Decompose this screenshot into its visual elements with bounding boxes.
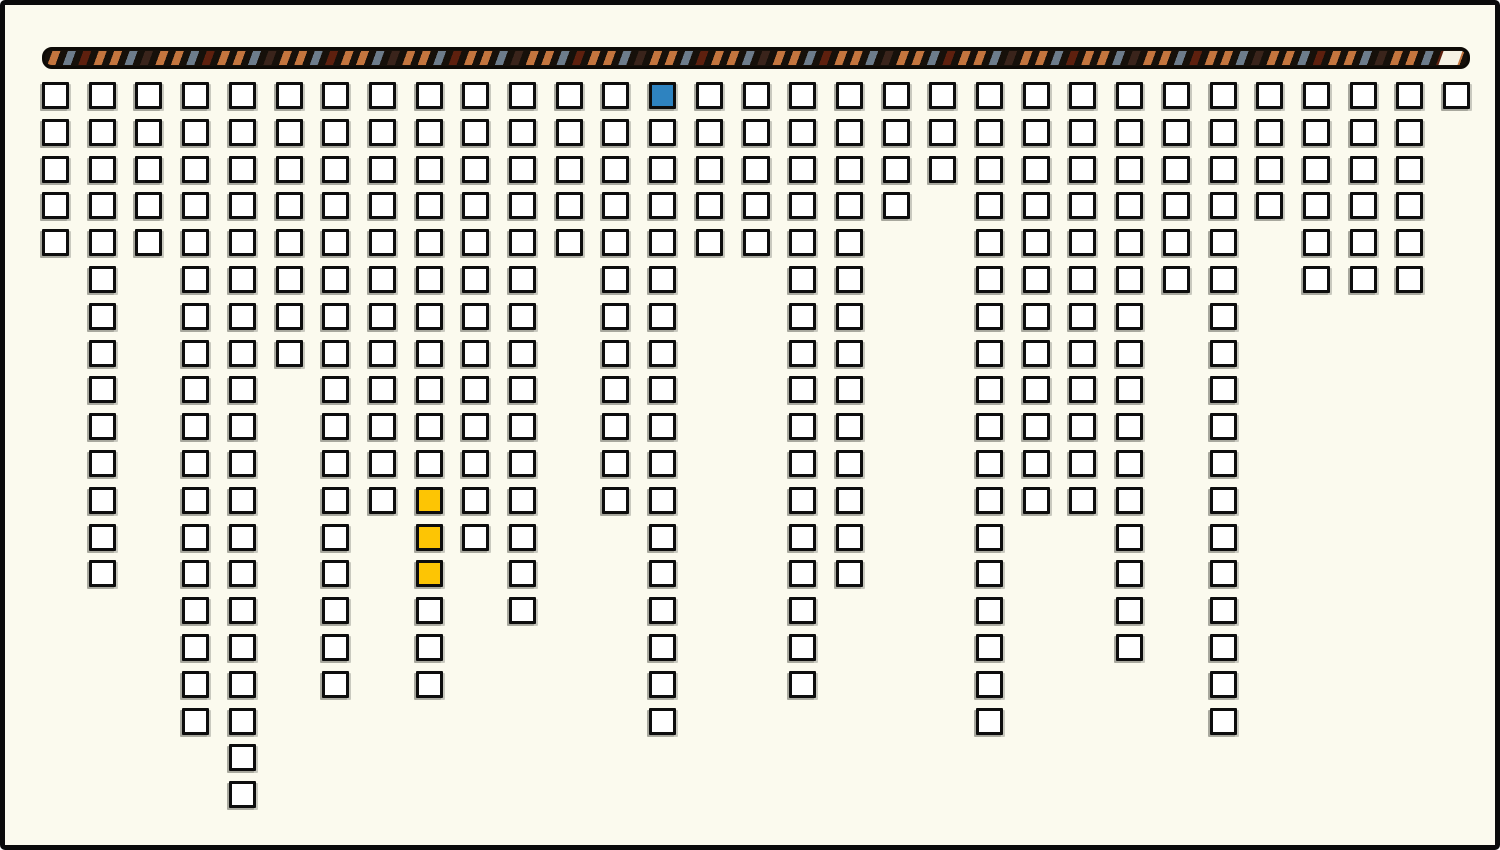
grid-cell: [556, 82, 583, 109]
grid-cell: [1023, 156, 1050, 183]
grid-cell: [462, 413, 489, 440]
grid-cell: [789, 82, 816, 109]
grid-cell: [649, 119, 676, 146]
grid-cell: [509, 524, 536, 551]
grid-cell: [416, 156, 443, 183]
grid-cell: [1163, 229, 1190, 256]
grid-cell: [229, 487, 256, 514]
grid-cell: [416, 82, 443, 109]
grid-cell: [1210, 413, 1237, 440]
grid-cell: [1303, 192, 1330, 219]
grid-cell: [743, 156, 770, 183]
grid-cell: [182, 450, 209, 477]
grid-cell: [976, 708, 1003, 735]
grid-cell: [602, 376, 629, 403]
grid-cell: [509, 192, 536, 219]
grid-cell: [322, 597, 349, 624]
grid-cell: [509, 266, 536, 293]
grid-cell: [1116, 82, 1143, 109]
grid-cell: [789, 450, 816, 477]
grid-cell: [1116, 376, 1143, 403]
grid-cell: [1210, 340, 1237, 367]
grid-cell: [416, 340, 443, 367]
grid-cell: [416, 303, 443, 330]
grid-cell: [369, 192, 396, 219]
grid-cell: [789, 524, 816, 551]
grid-cell: [509, 303, 536, 330]
grid-cell: [836, 376, 863, 403]
grid-cell: [1210, 524, 1237, 551]
grid-cell: [229, 560, 256, 587]
grid-cell: [369, 266, 396, 293]
rope-stripe-pattern: [45, 51, 1467, 65]
grid-cell: [976, 376, 1003, 403]
grid-cell: [369, 303, 396, 330]
grid-cell: [976, 303, 1003, 330]
grid-cell: [416, 229, 443, 256]
grid-cell: [369, 413, 396, 440]
grid-cell: [602, 229, 629, 256]
grid-cell: [1350, 119, 1377, 146]
grid-cell: [462, 376, 489, 403]
grid-cell: [696, 229, 723, 256]
grid-cell: [369, 119, 396, 146]
highlighted-grid-cell: [416, 487, 443, 514]
grid-cell: [135, 82, 162, 109]
grid-cell: [182, 376, 209, 403]
grid-cell: [976, 671, 1003, 698]
grid-cell: [322, 524, 349, 551]
grid-cell: [276, 340, 303, 367]
grid-cell: [602, 156, 629, 183]
grid-cell: [416, 119, 443, 146]
grid-cell: [369, 229, 396, 256]
grid-cell: [556, 192, 583, 219]
grid-cell: [696, 192, 723, 219]
grid-cell: [789, 487, 816, 514]
grid-cell: [89, 560, 116, 587]
grid-cell: [89, 156, 116, 183]
grid-cell: [1069, 413, 1096, 440]
grid-cell: [509, 450, 536, 477]
grid-cell: [1069, 119, 1096, 146]
grid-cell: [229, 192, 256, 219]
grid-cell: [1396, 156, 1423, 183]
grid-cell: [462, 487, 489, 514]
grid-cell: [322, 82, 349, 109]
grid-cell: [509, 340, 536, 367]
grid-cell: [649, 560, 676, 587]
grid-cell: [1116, 634, 1143, 661]
grid-cell: [1210, 192, 1237, 219]
grid-cell: [322, 560, 349, 587]
grid-cell: [649, 597, 676, 624]
grid-cell: [89, 450, 116, 477]
grid-cell: [182, 671, 209, 698]
grid-cell: [462, 450, 489, 477]
grid-cell: [649, 413, 676, 440]
grid-cell: [556, 156, 583, 183]
grid-cell: [789, 229, 816, 256]
grid-cell: [1163, 192, 1190, 219]
grid-cell: [89, 376, 116, 403]
grid-cell: [135, 119, 162, 146]
grid-cell: [229, 413, 256, 440]
grid-cell: [89, 229, 116, 256]
grid-cell: [1303, 119, 1330, 146]
grid-cell: [182, 524, 209, 551]
grid-cell: [1116, 156, 1143, 183]
grid-cell: [462, 340, 489, 367]
grid-cell: [135, 229, 162, 256]
grid-cell: [976, 450, 1003, 477]
grid-cell: [462, 524, 489, 551]
grid-cell: [649, 192, 676, 219]
grid-cell: [1163, 156, 1190, 183]
grid-cell: [602, 119, 629, 146]
grid-cell: [322, 119, 349, 146]
grid-cell: [89, 487, 116, 514]
grid-cell: [649, 303, 676, 330]
grid-cell: [1116, 524, 1143, 551]
grid-cell: [1069, 376, 1096, 403]
grid-cell: [883, 192, 910, 219]
grid-cell: [976, 634, 1003, 661]
grid-cell: [1350, 192, 1377, 219]
grid-cell: [229, 229, 256, 256]
grid-cell: [1163, 119, 1190, 146]
grid-cell: [1210, 450, 1237, 477]
grid-cell: [1210, 671, 1237, 698]
grid-cell: [229, 671, 256, 698]
grid-cell: [369, 487, 396, 514]
grid-cell: [743, 82, 770, 109]
grid-cell: [369, 450, 396, 477]
grid-cell: [182, 413, 209, 440]
grid-cell: [182, 266, 209, 293]
grid-cell: [1210, 119, 1237, 146]
grid-cell: [789, 413, 816, 440]
grid-cell: [1210, 708, 1237, 735]
grid-cell: [229, 119, 256, 146]
grid-cell: [229, 634, 256, 661]
grid-cell: [416, 634, 443, 661]
grid-cell: [1023, 192, 1050, 219]
grid-cell: [789, 560, 816, 587]
grid-cell: [1116, 303, 1143, 330]
grid-cell: [649, 634, 676, 661]
grid-cell: [836, 229, 863, 256]
grid-cell: [836, 413, 863, 440]
grid-cell: [89, 340, 116, 367]
grid-cell: [276, 156, 303, 183]
grid-cell: [89, 413, 116, 440]
grid-cell: [1069, 303, 1096, 330]
grid-cell: [1396, 119, 1423, 146]
grid-cell: [836, 450, 863, 477]
grid-cell: [1116, 340, 1143, 367]
grid-cell: [789, 597, 816, 624]
grid-cell: [1023, 413, 1050, 440]
grid-cell: [322, 634, 349, 661]
grid-cell: [322, 413, 349, 440]
grid-cell: [976, 192, 1003, 219]
grid-cell: [976, 156, 1003, 183]
grid-cell: [322, 303, 349, 330]
grid-cell: [1303, 82, 1330, 109]
grid-cell: [1116, 450, 1143, 477]
grid-cell: [416, 450, 443, 477]
grid-cell: [182, 229, 209, 256]
grid-cell: [1069, 266, 1096, 293]
grid-cell: [1210, 487, 1237, 514]
grid-cell: [836, 192, 863, 219]
grid-cell: [229, 82, 256, 109]
grid-cell: [42, 119, 69, 146]
grid-cell: [1396, 192, 1423, 219]
grid-cell: [649, 671, 676, 698]
grid-cell: [929, 156, 956, 183]
grid-cell: [1210, 156, 1237, 183]
grid-cell: [649, 266, 676, 293]
grid-cell: [182, 82, 209, 109]
grid-cell: [789, 671, 816, 698]
grid-cell: [229, 156, 256, 183]
grid-cell: [789, 266, 816, 293]
grid-cell: [182, 597, 209, 624]
grid-cell: [1256, 156, 1283, 183]
grid-cell: [1023, 229, 1050, 256]
grid-cell: [649, 156, 676, 183]
grid-cell: [182, 192, 209, 219]
grid-cell: [416, 671, 443, 698]
grid-cell: [1256, 82, 1283, 109]
grid-cell: [836, 266, 863, 293]
grid-cell: [276, 303, 303, 330]
grid-cell: [1023, 340, 1050, 367]
grid-cell: [182, 634, 209, 661]
grid-cell: [462, 192, 489, 219]
grid-cell: [182, 156, 209, 183]
grid-cell: [322, 229, 349, 256]
grid-cell: [229, 744, 256, 771]
grid-cell: [229, 376, 256, 403]
grid-cell: [883, 82, 910, 109]
grid-cell: [976, 119, 1003, 146]
grid-cell: [182, 340, 209, 367]
grid-cell: [649, 487, 676, 514]
grid-cell: [1069, 487, 1096, 514]
grid-cell: [1210, 560, 1237, 587]
grid-cell: [976, 82, 1003, 109]
grid-cell: [602, 450, 629, 477]
grid-cell: [836, 82, 863, 109]
grid-cell: [276, 192, 303, 219]
grid-cell: [696, 156, 723, 183]
grid-cell: [602, 340, 629, 367]
grid-cell: [976, 266, 1003, 293]
highlighted-grid-cell: [649, 82, 676, 109]
grid-cell: [976, 340, 1003, 367]
grid-cell: [976, 560, 1003, 587]
grid-cell: [89, 524, 116, 551]
grid-cell: [509, 229, 536, 256]
grid-cell: [789, 303, 816, 330]
grid-cell: [649, 450, 676, 477]
grid-cell: [322, 450, 349, 477]
grid-cell: [836, 119, 863, 146]
grid-cell: [1350, 229, 1377, 256]
grid-cell: [229, 450, 256, 477]
grid-cell: [229, 781, 256, 808]
grid-cell: [602, 413, 629, 440]
grid-cell: [976, 524, 1003, 551]
grid-cell: [836, 303, 863, 330]
grid-cell: [1443, 82, 1470, 109]
grid-cell: [89, 192, 116, 219]
grid-cell: [1069, 82, 1096, 109]
highlighted-grid-cell: [416, 560, 443, 587]
grid-cell: [883, 119, 910, 146]
grid-cell: [182, 119, 209, 146]
grid-cell: [1396, 266, 1423, 293]
grid-cell: [322, 340, 349, 367]
grid-cell: [1396, 82, 1423, 109]
grid-cell: [789, 192, 816, 219]
grid-cell: [929, 82, 956, 109]
grid-cell: [322, 376, 349, 403]
grid-cell: [883, 156, 910, 183]
grid-cell: [1210, 229, 1237, 256]
grid-cell: [1210, 634, 1237, 661]
grid-cell: [1163, 82, 1190, 109]
grid-cell: [509, 487, 536, 514]
grid-cell: [229, 303, 256, 330]
grid-cell: [1256, 119, 1283, 146]
striped-rope-bar: [42, 47, 1470, 69]
grid-cell: [1210, 597, 1237, 624]
grid-cell: [836, 560, 863, 587]
grid-cell: [696, 119, 723, 146]
grid-cell: [182, 708, 209, 735]
grid-cell: [322, 156, 349, 183]
grid-cell: [509, 413, 536, 440]
grid-cell: [1116, 192, 1143, 219]
grid-cell: [1023, 487, 1050, 514]
grid-cell: [322, 266, 349, 293]
grid-cell: [649, 708, 676, 735]
grid-cell: [416, 413, 443, 440]
grid-cell: [789, 634, 816, 661]
grid-cell: [1116, 560, 1143, 587]
grid-cell: [836, 340, 863, 367]
grid-cell: [1069, 229, 1096, 256]
grid-cell: [1069, 340, 1096, 367]
grid-cell: [509, 156, 536, 183]
grid-cell: [1116, 597, 1143, 624]
grid-cell: [416, 192, 443, 219]
grid-cell: [1210, 266, 1237, 293]
grid-cell: [276, 119, 303, 146]
grid-cell: [369, 82, 396, 109]
grid-cell: [1396, 229, 1423, 256]
grid-cell: [743, 229, 770, 256]
grid-cell: [509, 560, 536, 587]
grid-cell: [369, 376, 396, 403]
grid-cell: [1023, 376, 1050, 403]
grid-cell: [229, 524, 256, 551]
grid-cell: [462, 82, 489, 109]
grid-cell: [509, 82, 536, 109]
grid-cell: [789, 119, 816, 146]
grid-cell: [135, 192, 162, 219]
grid-cell: [1210, 376, 1237, 403]
grid-cell: [42, 192, 69, 219]
grid-cell: [322, 671, 349, 698]
grid-cell: [602, 192, 629, 219]
grid-cell: [1116, 266, 1143, 293]
grid-cell: [1116, 413, 1143, 440]
grid-cell: [649, 340, 676, 367]
grid-cell: [836, 487, 863, 514]
grid-cell: [1210, 303, 1237, 330]
grid-cell: [229, 708, 256, 735]
grid-cell: [836, 156, 863, 183]
grid-cell: [649, 524, 676, 551]
grid-cell: [1116, 119, 1143, 146]
grid-cell: [789, 340, 816, 367]
grid-cell: [976, 413, 1003, 440]
grid-cell: [369, 156, 396, 183]
grid-cell: [1069, 192, 1096, 219]
grid-cell: [462, 303, 489, 330]
grid-cell: [1023, 82, 1050, 109]
grid-cell: [1303, 156, 1330, 183]
grid-cell: [976, 229, 1003, 256]
grid-cell: [509, 376, 536, 403]
grid-cell: [182, 303, 209, 330]
grid-cell: [416, 266, 443, 293]
grid-cell: [649, 376, 676, 403]
grid-cell: [1350, 156, 1377, 183]
grid-cell: [509, 597, 536, 624]
grid-cell: [89, 303, 116, 330]
grid-cell: [743, 119, 770, 146]
grid-cell: [1069, 156, 1096, 183]
grid-cell: [229, 340, 256, 367]
grid-cell: [369, 340, 396, 367]
grid-cell: [602, 303, 629, 330]
grid-cell: [42, 156, 69, 183]
grid-cell: [556, 229, 583, 256]
grid-cell: [276, 229, 303, 256]
grid-cell: [1069, 450, 1096, 477]
grid-cell: [1303, 266, 1330, 293]
grid-cell: [1023, 119, 1050, 146]
grid-cell: [509, 119, 536, 146]
grid-cell: [1210, 82, 1237, 109]
visualization-canvas: [0, 0, 1500, 850]
grid-cell: [416, 597, 443, 624]
grid-cell: [602, 487, 629, 514]
grid-cell: [462, 266, 489, 293]
grid-cell: [789, 156, 816, 183]
grid-cell: [649, 229, 676, 256]
grid-cell: [602, 82, 629, 109]
grid-cell: [462, 156, 489, 183]
grid-cell: [976, 597, 1003, 624]
grid-cell: [696, 82, 723, 109]
